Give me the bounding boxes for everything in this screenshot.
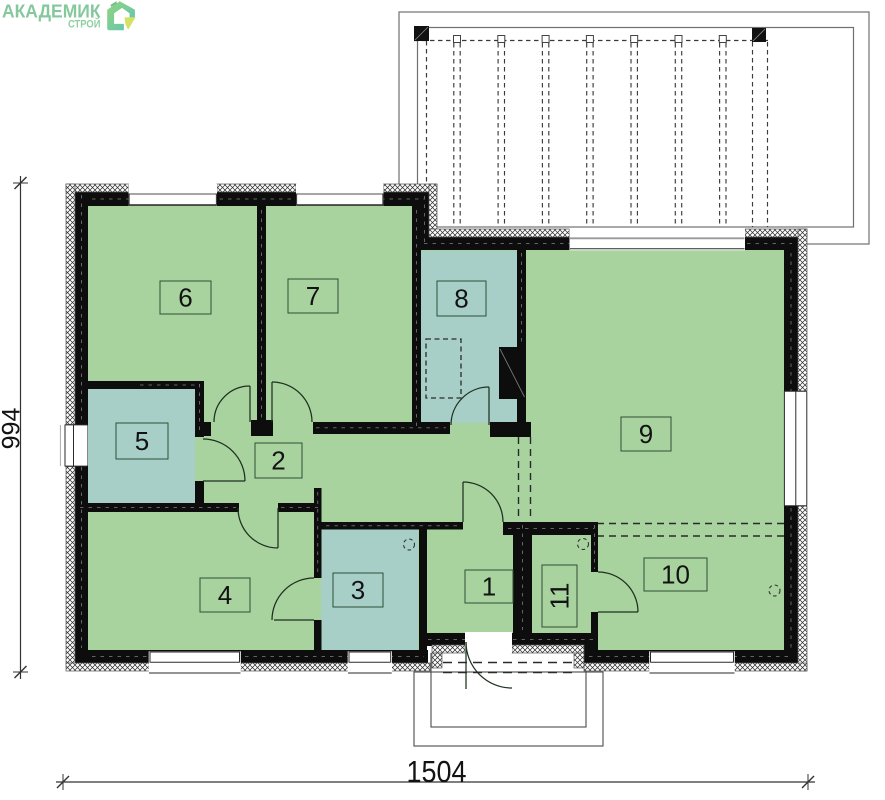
svg-text:6: 6	[178, 283, 192, 313]
svg-text:7: 7	[306, 281, 320, 311]
svg-text:3: 3	[351, 575, 365, 605]
svg-text:8: 8	[454, 284, 468, 314]
svg-text:4: 4	[218, 580, 232, 610]
svg-text:1504: 1504	[407, 754, 467, 789]
svg-text:9: 9	[639, 419, 653, 449]
svg-text:СТРОЙ: СТРОЙ	[68, 18, 101, 31]
svg-text:10: 10	[661, 560, 690, 590]
svg-text:994: 994	[0, 408, 25, 450]
svg-text:2: 2	[271, 446, 285, 476]
svg-text:1: 1	[482, 572, 496, 602]
svg-text:11: 11	[545, 583, 575, 610]
svg-text:5: 5	[135, 426, 149, 456]
